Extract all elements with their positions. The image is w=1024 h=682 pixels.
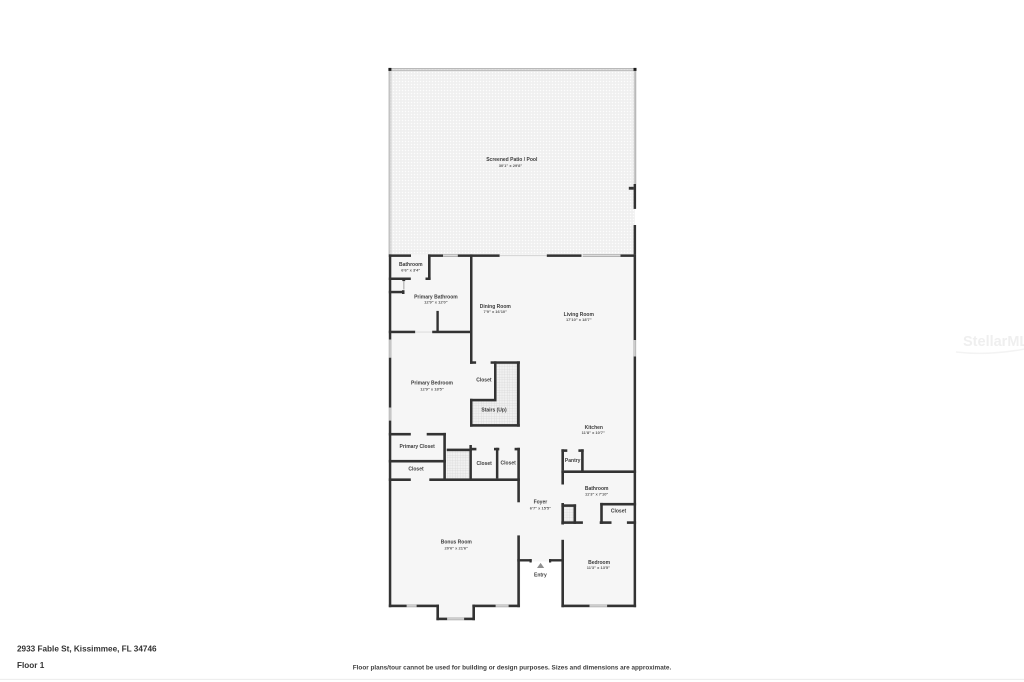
svg-text:StellarMLS: StellarMLS xyxy=(963,334,1024,350)
svg-text:12'9" x 12'0": 12'9" x 12'0" xyxy=(424,299,448,304)
svg-text:Pantry: Pantry xyxy=(565,458,581,464)
svg-text:12'9" x 18'5": 12'9" x 18'5" xyxy=(420,386,444,391)
svg-text:11'8" x 10'7": 11'8" x 10'7" xyxy=(582,430,605,435)
svg-text:Primary Closet: Primary Closet xyxy=(400,444,436,450)
svg-text:Closet: Closet xyxy=(477,461,493,467)
svg-text:17'10" x 18'7": 17'10" x 18'7" xyxy=(566,317,592,322)
svg-text:11'3" x 7'10": 11'3" x 7'10" xyxy=(585,491,608,496)
svg-text:6'7" x 15'5": 6'7" x 15'5" xyxy=(530,506,551,511)
svg-text:Floor plans/tour cannot be use: Floor plans/tour cannot be used for buil… xyxy=(353,665,672,672)
svg-text:2933 Fable St, Kissimmee, FL 3: 2933 Fable St, Kissimmee, FL 34746 xyxy=(17,645,157,654)
svg-text:Closet: Closet xyxy=(476,377,492,383)
svg-text:7'9" x 16'10": 7'9" x 16'10" xyxy=(484,309,508,314)
svg-text:Floor 1: Floor 1 xyxy=(17,661,45,670)
svg-text:Entry: Entry xyxy=(534,572,547,578)
svg-text:Closet: Closet xyxy=(408,467,424,473)
svg-text:Closet: Closet xyxy=(501,460,517,466)
svg-text:Closet: Closet xyxy=(611,508,627,514)
svg-text:30'1" x 29'8": 30'1" x 29'8" xyxy=(499,163,523,168)
svg-text:Stairs (Up): Stairs (Up) xyxy=(481,408,507,414)
svg-text:11'3" x 13'5": 11'3" x 13'5" xyxy=(587,565,610,570)
svg-text:6'6" x 3'4": 6'6" x 3'4" xyxy=(401,267,420,272)
svg-text:20'6" x 21'6": 20'6" x 21'6" xyxy=(445,545,469,550)
